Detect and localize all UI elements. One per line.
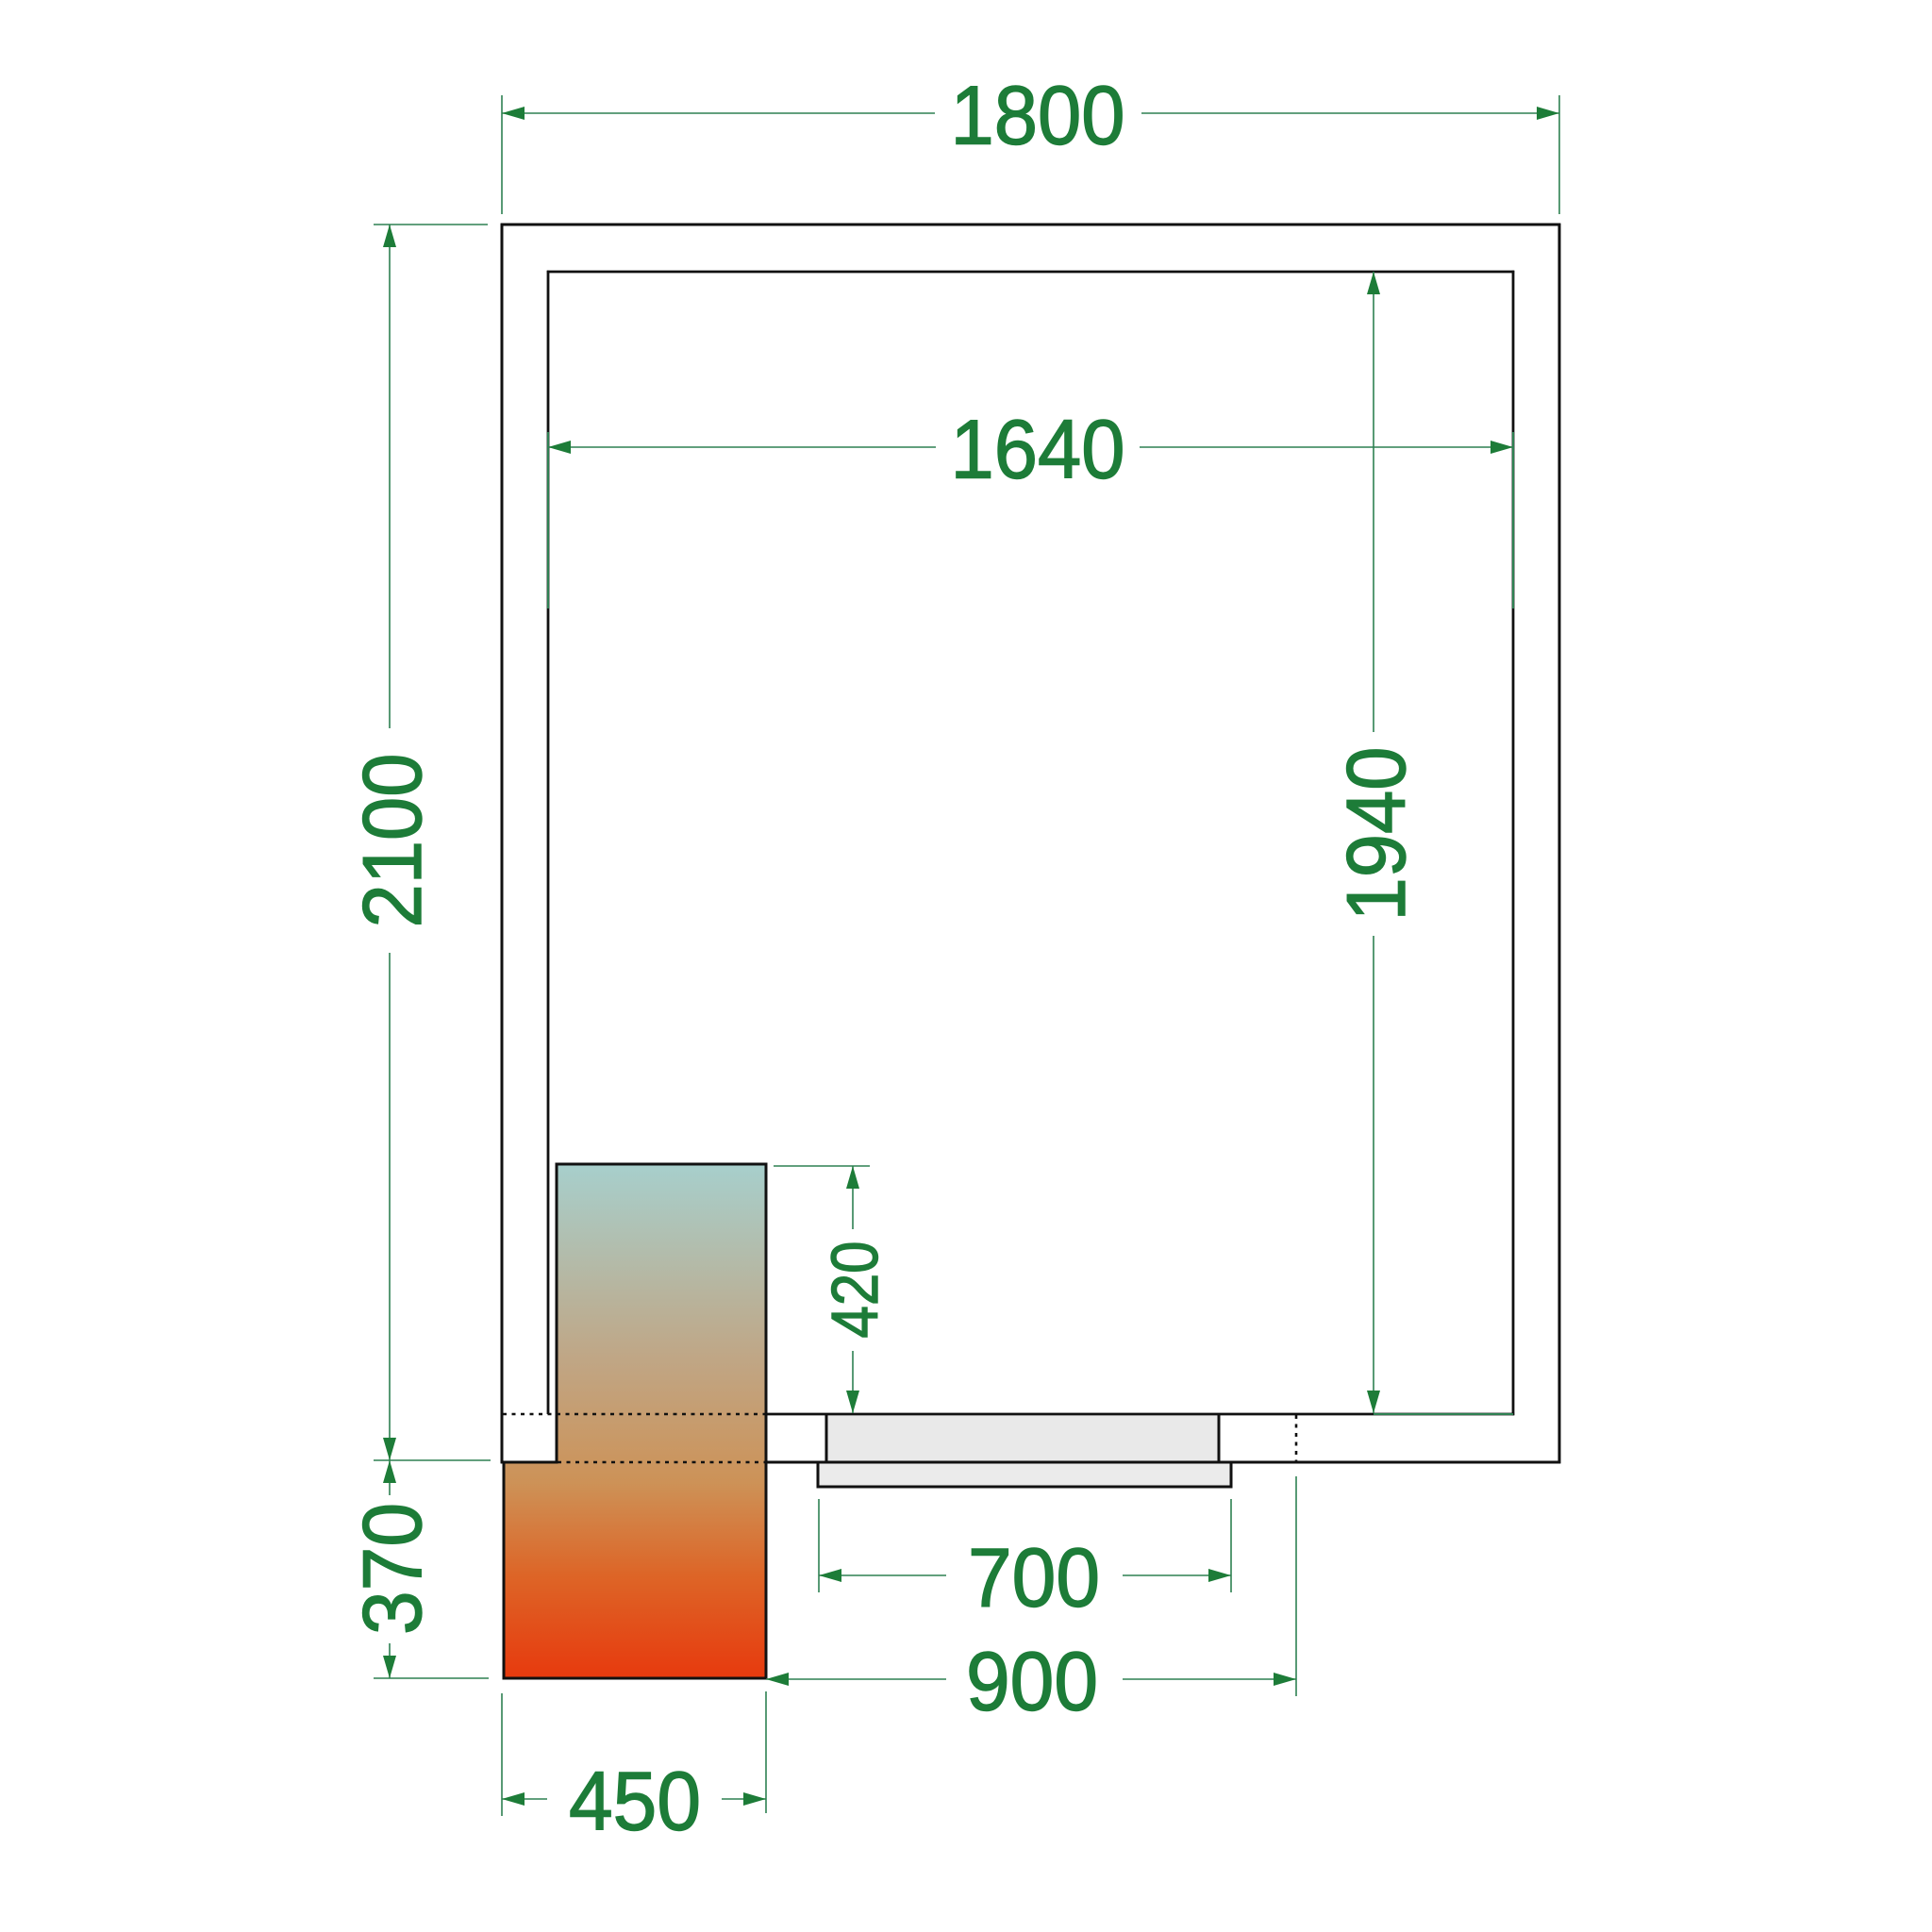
- svg-text:2100: 2100: [345, 754, 439, 928]
- svg-text:1940: 1940: [1329, 747, 1423, 922]
- svg-text:1640: 1640: [951, 403, 1125, 496]
- svg-text:450: 450: [569, 1755, 701, 1848]
- svg-text:1800: 1800: [951, 69, 1125, 162]
- svg-text:370: 370: [345, 1503, 439, 1635]
- svg-text:700: 700: [968, 1531, 1100, 1624]
- svg-text:900: 900: [966, 1635, 1098, 1728]
- svg-text:420: 420: [818, 1241, 891, 1339]
